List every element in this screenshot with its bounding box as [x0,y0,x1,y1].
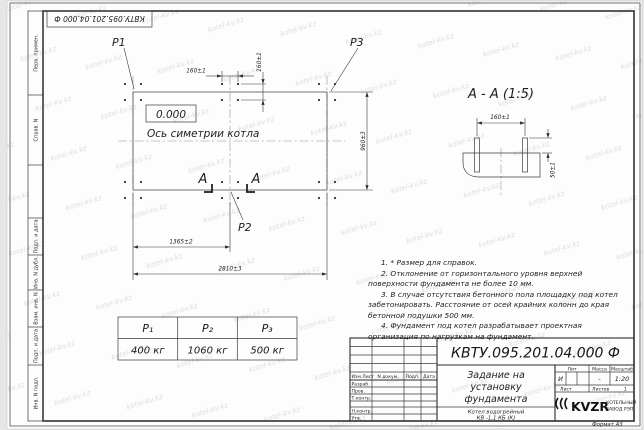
drawing-name-line2: установку [469,382,522,393]
col-n-dokum: N докум. [377,374,398,380]
load-point-p2-label: P2 [238,221,252,234]
product-name-line2: КВ -1,1 КБ (К) [477,416,516,422]
load-table-header-p1: P₁ [142,322,153,335]
note-3: 3. В случае отсутствия бетонного пола пл… [368,290,624,322]
drawing-name-line3: фундамента [465,394,528,405]
margin-label-inv-dubl: Инв. N дубл. [34,256,40,289]
boiler-symmetry-axis-label: Ось симетрии котла [147,128,259,140]
section-letter-left: А [198,172,208,187]
scale-value: 1:20 [615,375,630,383]
sheets-label: Листов [592,387,609,393]
lit-label: Лит [567,367,576,373]
drawing-svg: kotel-kv.kz kotel-kv.kz Перв. примен. Сп… [0,0,644,430]
scale-label: Масштаб [611,367,633,373]
note-4: 4. Фундамент под котел разрабатывает про… [368,321,624,342]
dim-total-text: 2810±3 [218,267,242,273]
margin-label-podp-data-1: Подп. и дата [34,219,40,253]
col-izm-list: Изм.Лист [352,374,375,380]
row-prov: Пров. [352,389,365,395]
level-mark-value: 0.000 [156,109,186,121]
row-razrab: Разраб. [352,382,370,388]
top-stamp-text: КВТУ.095.201.04.000 Ф [54,14,145,23]
margin-label-inv-podl: Инв. N подл. [34,376,40,409]
lit-value: И [558,375,563,383]
load-table-header-p2: P₂ [202,322,214,335]
load-table-value-p2: 1060 кг [188,346,229,357]
load-table-value-p3: 500 кг [250,346,284,357]
drawing-name-line1: Задание на [467,370,525,381]
dim-mid-text: 1365±2 [169,240,193,246]
logo-subtitle-1: КОТЕЛЬНЫЙ [606,399,636,406]
section-detail-title: А - А (1:5) [467,87,534,102]
load-table-value-p1: 400 кг [131,346,165,357]
dim-detail-side-text: 50±1 [551,162,557,178]
drawing-sheet: kotel-kv.kz kotel-kv.kz Перв. примен. Сп… [0,0,644,430]
logo-subtitle-2: ЗАВОД РЭП [606,407,633,413]
mass-label: Масса [592,367,607,373]
logo-text: KVZR [571,399,609,414]
load-point-p3-label: P3 [350,36,364,49]
load-point-p1-label: P1 [112,36,126,49]
sheets-value: 1 [624,387,627,393]
col-podp: Подп. [406,374,420,380]
sheet-label: Лист [560,387,572,393]
row-utv: Утв. [352,416,362,422]
note-2: 2. Отклонение от горизонтального уровня … [368,269,624,290]
col-data: Дата [423,374,435,380]
note-1: 1. * Размер для справок. [368,258,624,269]
margin-label-perv-primen: Перв. примен. [34,34,40,72]
load-table: P₁ P₂ P₃ 400 кг 1060 кг 500 кг [118,317,297,360]
margin-label-sprav-n: Справ. N [34,118,40,141]
dim-bolt-horizontal-text: 160±1 [186,69,206,75]
row-nkontr: Н.контр. [352,409,373,415]
section-letter-right: А [251,172,261,187]
dim-detail-top-text: 160±1 [490,115,510,121]
margin-label-podp-data-2: Подп. и дата [34,329,40,363]
dim-height-text: 960±3 [361,131,367,151]
doc-number: КВТУ.095.201.04.000 Ф [451,346,620,362]
technical-notes: 1. * Размер для справок. 2. Отклонение о… [368,258,624,342]
format-note: Формат А3 [592,422,623,428]
dim-bolt-vertical-text: 160±1 [257,52,263,72]
row-tkontr: Т.контр. [351,396,372,402]
load-table-header-p3: P₃ [262,322,274,335]
margin-label-vzam-inv: Взам. инв. N [34,292,40,325]
